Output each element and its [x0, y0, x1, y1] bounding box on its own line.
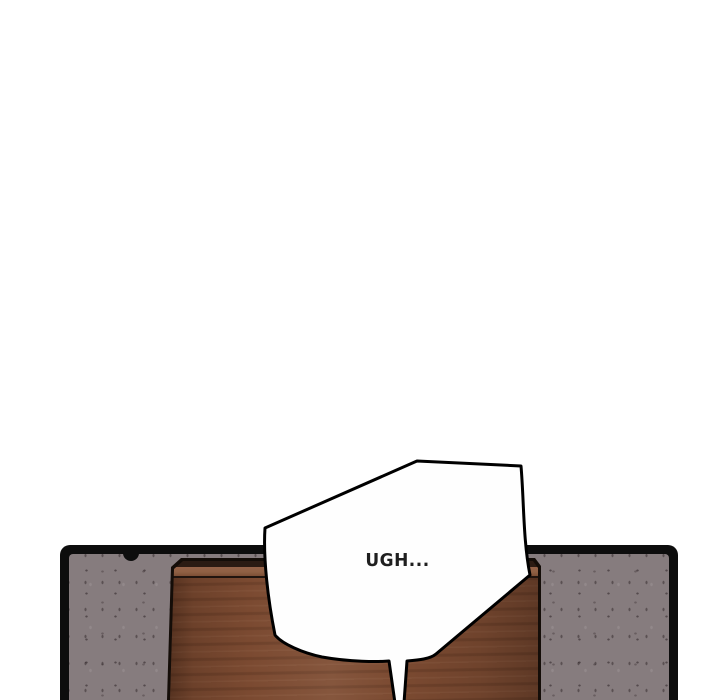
- door-surface: [167, 558, 541, 700]
- speech-bubble-text: UGH...: [345, 551, 450, 572]
- door-face: [167, 578, 541, 700]
- comic-page[interactable]: UGH...: [0, 0, 720, 700]
- door: [167, 558, 541, 700]
